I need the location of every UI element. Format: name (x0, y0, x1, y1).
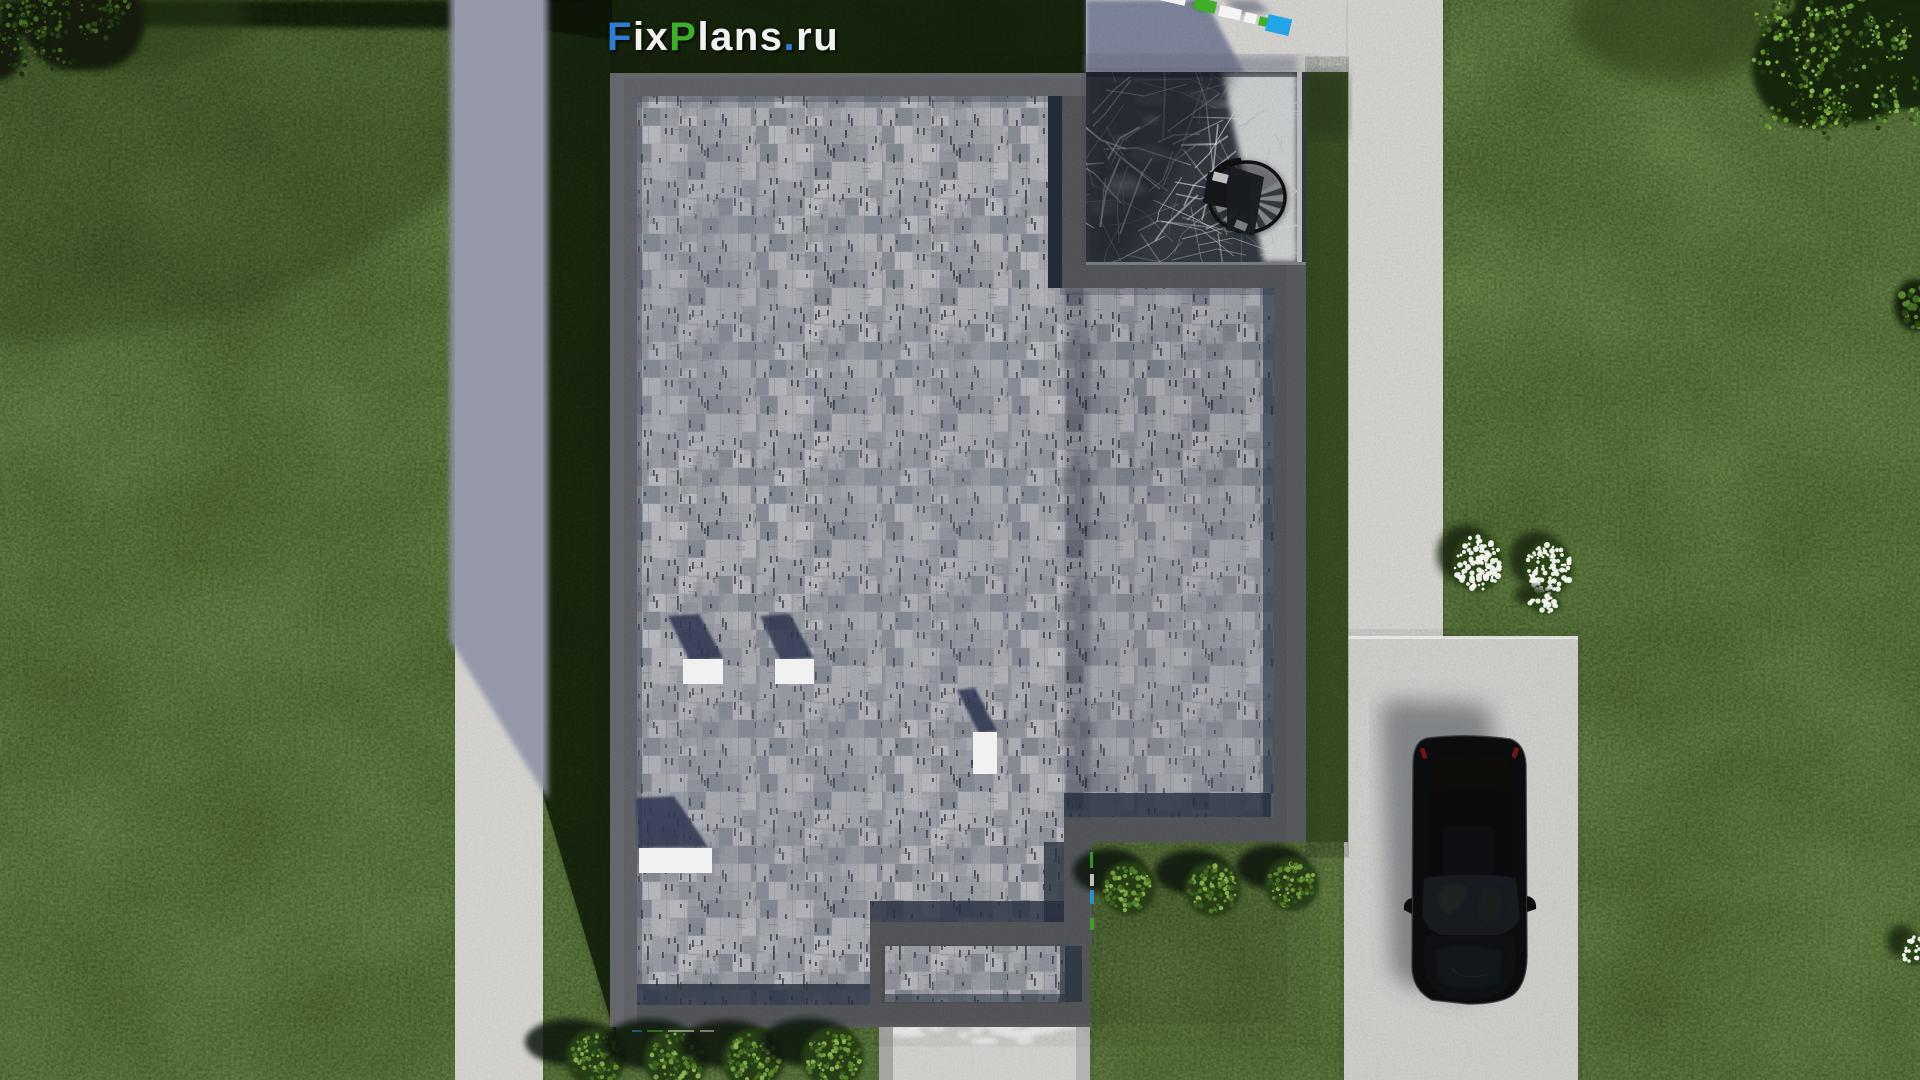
svg-text:FixPlans.ru: FixPlans.ru (607, 15, 839, 59)
